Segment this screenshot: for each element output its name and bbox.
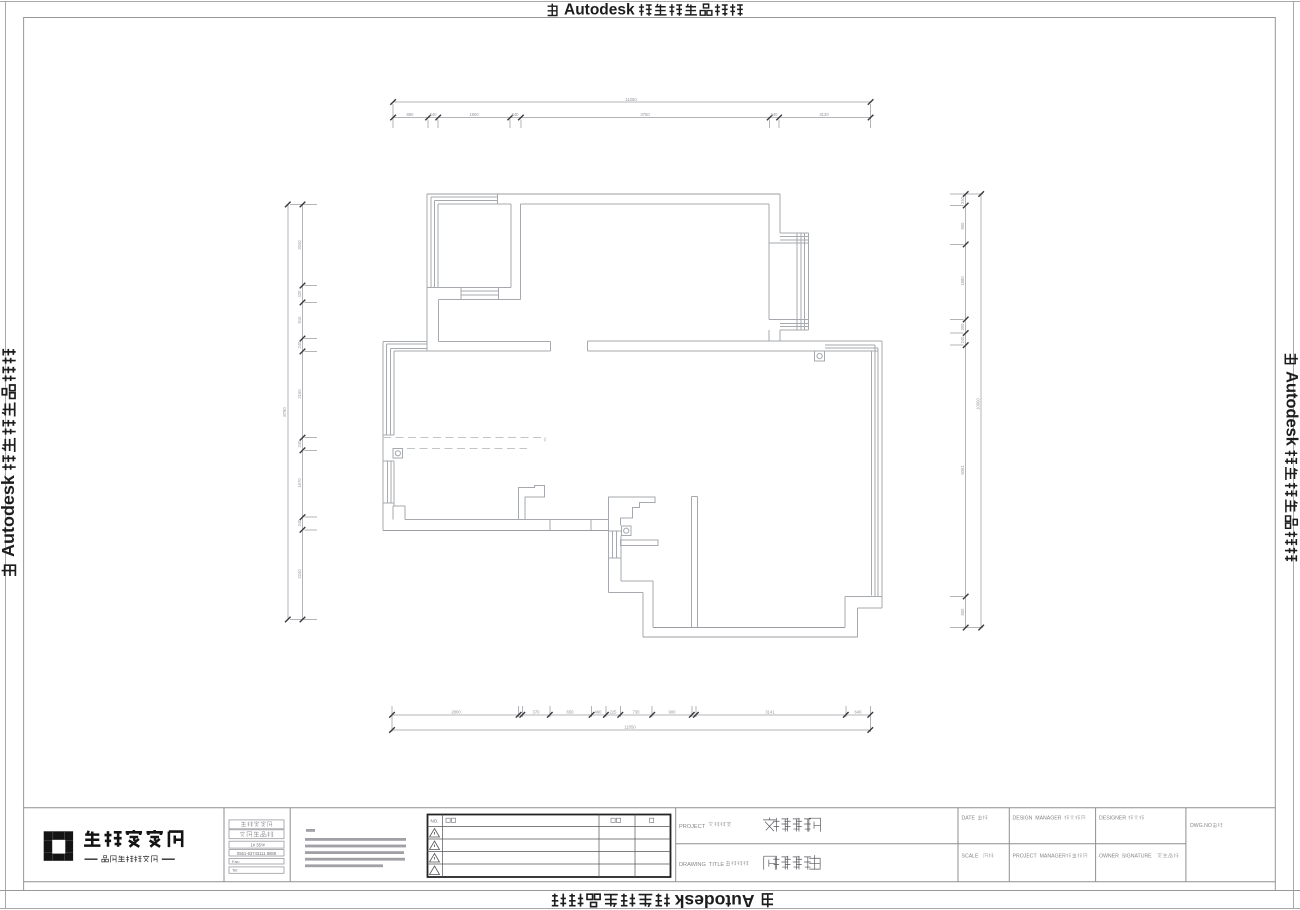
svg-text:10060: 10060 [976, 398, 981, 410]
svg-text:2240: 2240 [297, 569, 302, 579]
svg-text:2160: 2160 [297, 389, 302, 399]
svg-text:5061: 5061 [960, 465, 965, 475]
svg-text:Tel:: Tel: [232, 868, 238, 873]
svg-text:300: 300 [960, 323, 965, 331]
svg-text:SCALE: SCALE [962, 854, 980, 860]
svg-text:370: 370 [533, 709, 541, 714]
svg-text:8780: 8780 [282, 407, 287, 417]
svg-text:240: 240 [297, 519, 302, 527]
svg-text:240: 240 [960, 196, 965, 204]
svg-text:640: 640 [855, 709, 863, 714]
svg-text:DATE: DATE [962, 816, 976, 822]
svg-text:730: 730 [633, 709, 641, 714]
svg-text:240: 240 [960, 336, 965, 344]
svg-text:1880: 1880 [960, 276, 965, 286]
svg-text:DESIGN MANAGER: DESIGN MANAGER [1013, 816, 1062, 822]
svg-text:PROJECT MANAGER: PROJECT MANAGER [1013, 854, 1067, 860]
svg-text:Autodesk: Autodesk [0, 474, 18, 557]
svg-text:650: 650 [567, 709, 575, 714]
svg-text:NO.: NO. [431, 819, 439, 824]
svg-text:DRAWING TITLE: DRAWING TITLE [679, 862, 724, 868]
svg-text:1# 35º#: 1# 35º# [248, 842, 265, 847]
svg-text:240: 240 [297, 341, 302, 349]
svg-text:11060: 11060 [625, 97, 637, 102]
svg-text:240: 240 [512, 112, 520, 117]
svg-text:2040: 2040 [297, 240, 302, 250]
svg-text:Autodesk: Autodesk [564, 1, 635, 18]
svg-text:225: 225 [610, 709, 618, 714]
svg-text:11050: 11050 [624, 725, 636, 730]
svg-text:DESIGNER: DESIGNER [1099, 816, 1126, 822]
svg-text:Autodesk: Autodesk [1282, 371, 1300, 447]
svg-text:240: 240 [297, 440, 302, 448]
svg-text:Fax:: Fax: [232, 859, 240, 864]
svg-text:420: 420 [297, 290, 302, 298]
svg-text:910: 910 [297, 316, 302, 324]
svg-text:800: 800 [960, 608, 965, 616]
svg-text:3750: 3750 [640, 112, 650, 117]
svg-text:900: 900 [960, 222, 965, 230]
svg-text:Autodesk: Autodesk [675, 891, 755, 910]
svg-text:240: 240 [771, 112, 779, 117]
svg-text:3120: 3120 [819, 112, 829, 117]
svg-text:1670: 1670 [297, 478, 302, 488]
svg-text:880: 880 [407, 112, 415, 117]
svg-text:900: 900 [669, 709, 677, 714]
svg-text:OWNER SIGNATURE: OWNER SIGNATURE [1099, 854, 1152, 860]
svg-text:460: 460 [595, 709, 603, 714]
svg-text:240: 240 [430, 112, 438, 117]
svg-text:PROJECT: PROJECT [679, 824, 706, 830]
svg-text:2800: 2800 [451, 709, 461, 714]
svg-text:0551-63743111 8888: 0551-63743111 8888 [237, 851, 277, 856]
svg-text:3141: 3141 [765, 709, 775, 714]
svg-text:1800: 1800 [469, 112, 479, 117]
svg-text:DWG.NO: DWG.NO [1190, 823, 1212, 829]
